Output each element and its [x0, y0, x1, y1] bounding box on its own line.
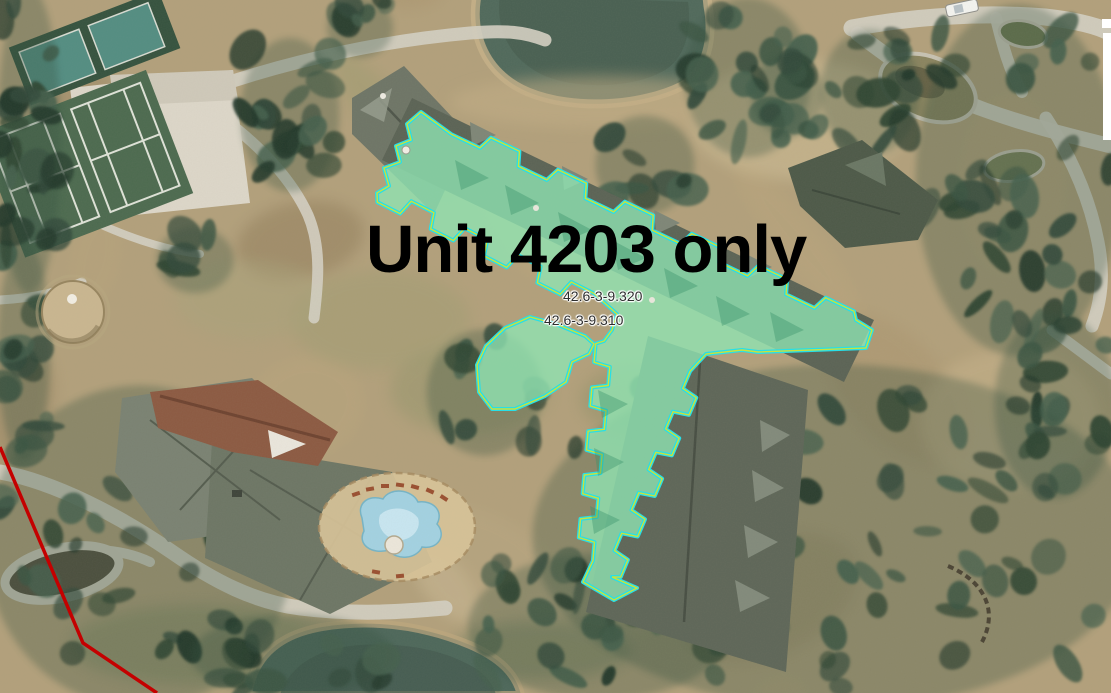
cropped-ui-fragment-bar	[1103, 33, 1111, 140]
parcel-id-label-320: 42.6-3-9.320	[563, 288, 642, 304]
aerial-imagery	[0, 0, 1111, 693]
aerial-map-viewport[interactable]: Unit 4203 only 42.6-3-9.320 42.6-3-9.310	[0, 0, 1111, 693]
parcel-id-label-310: 42.6-3-9.310	[544, 312, 623, 328]
cropped-ui-fragment-top	[1102, 19, 1111, 28]
annotation-title: Unit 4203 only	[366, 216, 966, 283]
